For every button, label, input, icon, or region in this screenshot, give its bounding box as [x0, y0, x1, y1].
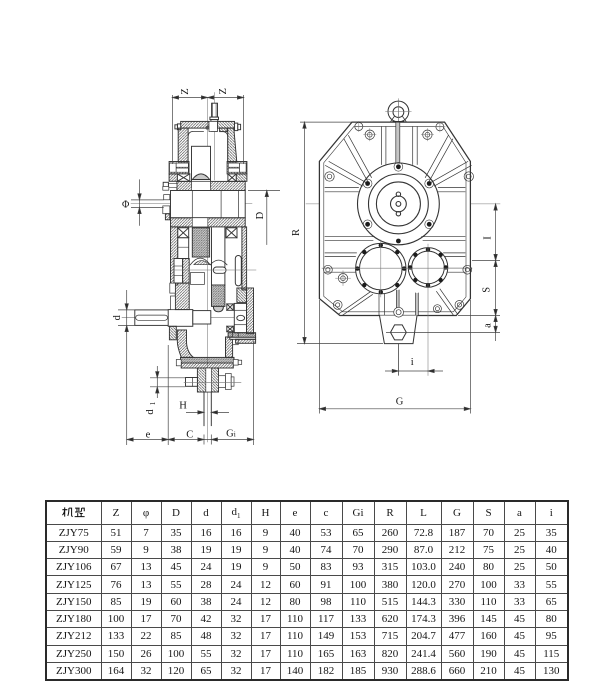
svg-text:H: H [179, 401, 187, 412]
svg-text:Z: Z [180, 88, 191, 94]
svg-text:S: S [482, 287, 493, 293]
svg-text:d: d [145, 409, 156, 415]
svg-text:Z: Z [218, 88, 229, 94]
svg-text:e: e [146, 429, 151, 440]
svg-text:I: I [482, 236, 493, 240]
svg-text:G: G [396, 397, 404, 408]
svg-text:Gi: Gi [226, 428, 236, 439]
svg-text:d: d [112, 314, 123, 320]
svg-text:C: C [186, 429, 193, 440]
svg-text:Φ: Φ [122, 199, 129, 210]
svg-text:R: R [291, 229, 302, 236]
svg-text:a: a [482, 323, 493, 328]
svg-text:D: D [255, 211, 266, 219]
svg-text:i: i [411, 357, 414, 368]
svg-text:1: 1 [149, 401, 157, 405]
